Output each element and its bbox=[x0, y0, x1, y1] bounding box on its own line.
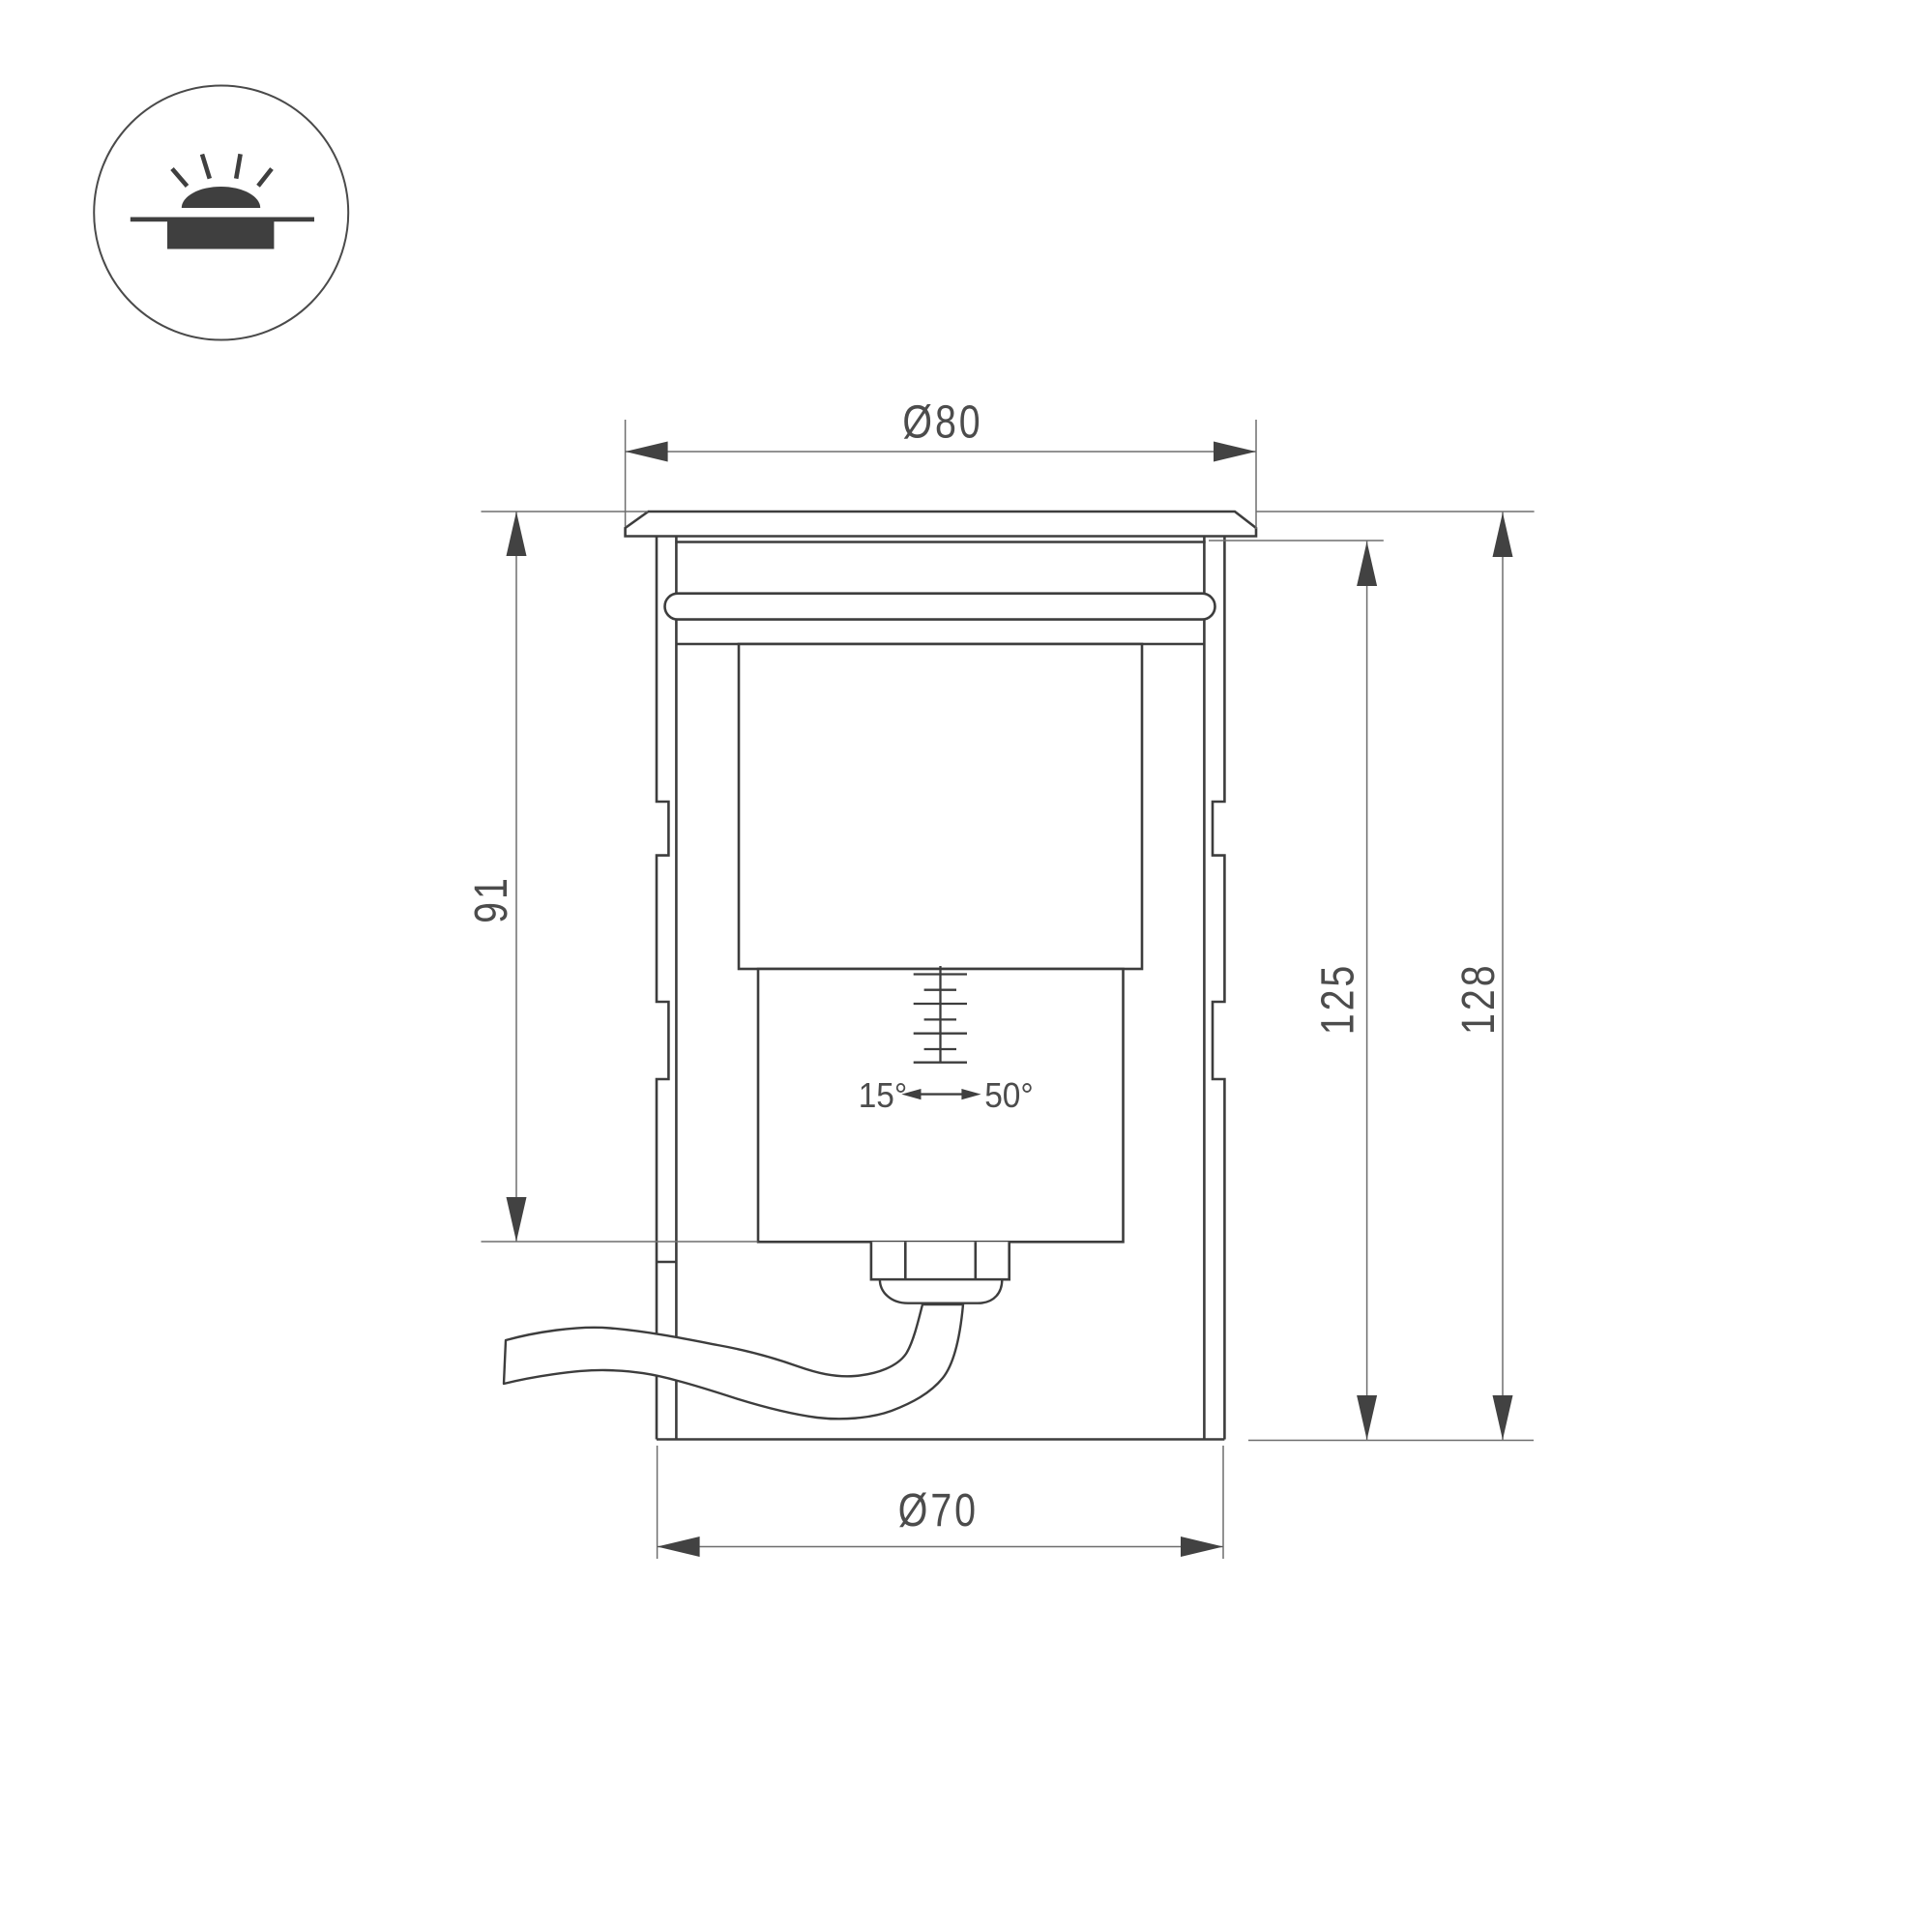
svg-text:91: 91 bbox=[465, 875, 517, 923]
svg-text:Ø80: Ø80 bbox=[902, 396, 982, 449]
svg-text:Ø70: Ø70 bbox=[898, 1484, 979, 1537]
svg-text:50°: 50° bbox=[984, 1077, 1034, 1115]
svg-text:125: 125 bbox=[1312, 963, 1364, 1036]
svg-text:15°: 15° bbox=[859, 1077, 908, 1115]
svg-text:128: 128 bbox=[1452, 962, 1505, 1035]
